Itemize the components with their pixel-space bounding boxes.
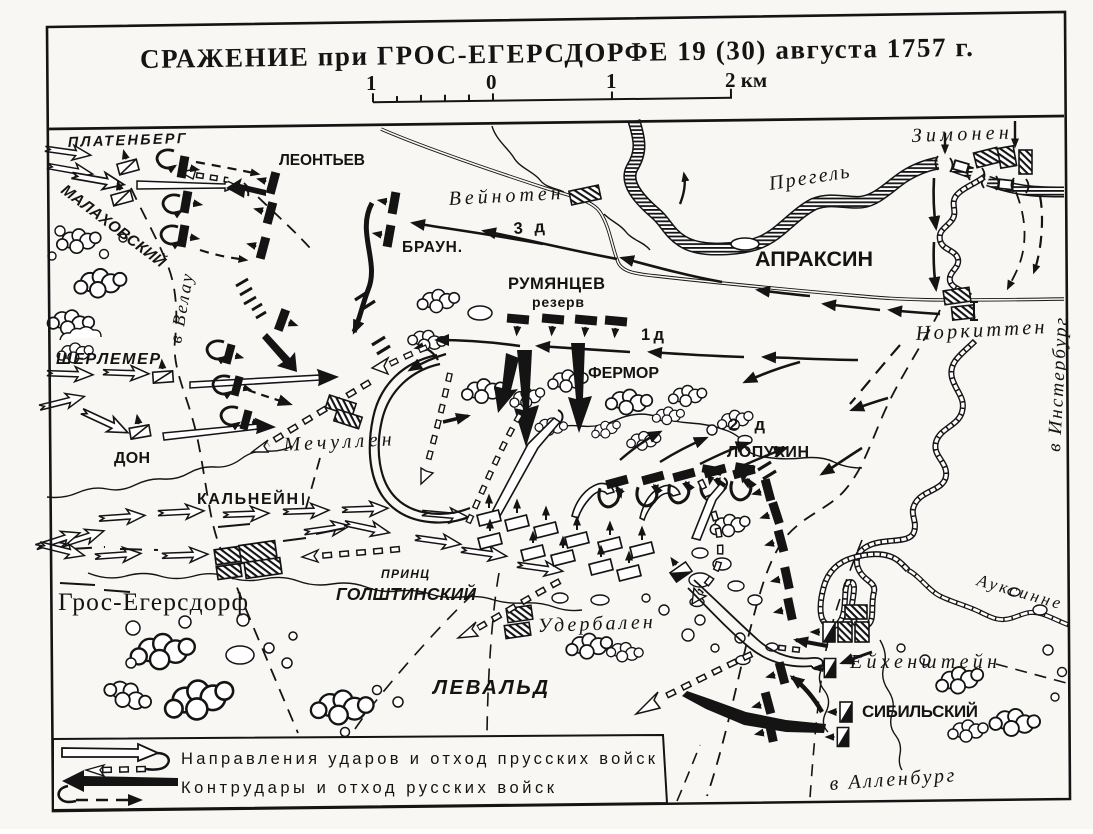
svg-text:Грос-Егерсдорф: Грос-Егерсдорф: [58, 587, 248, 616]
svg-text:БРАУН.: БРАУН.: [402, 239, 462, 256]
svg-text:1: 1: [366, 71, 377, 95]
svg-text:Направления ударов и отход пру: Направления ударов и отход прусских войс…: [181, 750, 656, 768]
svg-text:2 д: 2 д: [729, 416, 766, 434]
svg-text:Ейхенштейн: Ейхенштейн: [849, 651, 997, 673]
svg-text:Контрудары и отход русских во: Контрудары и отход русских войск: [181, 779, 555, 797]
svg-text:ФЕРМОР: ФЕРМОР: [588, 365, 659, 382]
svg-text:резерв: резерв: [532, 294, 584, 310]
svg-text:1: 1: [606, 69, 617, 93]
svg-text:3 д: 3 д: [513, 218, 546, 238]
svg-text:ЛЕВАЛЬД: ЛЕВАЛЬД: [431, 676, 548, 699]
svg-text:ШЕРЛЕМЕР: ШЕРЛЕМЕР: [56, 351, 160, 368]
svg-text:КАЛЬНЕЙН: КАЛЬНЕЙН: [197, 489, 298, 508]
svg-text:1 д: 1 д: [641, 326, 665, 344]
svg-text:2 км: 2 км: [725, 68, 767, 92]
svg-text:РУМЯНЦЕВ: РУМЯНЦЕВ: [508, 275, 605, 293]
svg-text:ПРИНЦ: ПРИНЦ: [381, 567, 429, 581]
svg-text:ЛЕОНТЬЕВ: ЛЕОНТЬЕВ: [279, 152, 365, 169]
svg-text:0: 0: [486, 70, 497, 94]
svg-text:ДОН: ДОН: [114, 450, 150, 467]
svg-text:АПРАКСИН: АПРАКСИН: [755, 247, 873, 271]
svg-text:ЛОПУХИН: ЛОПУХИН: [727, 444, 809, 461]
svg-text:Удербален: Удербален: [537, 611, 653, 637]
svg-text:СИБИЛЬСКИЙ: СИБИЛЬСКИЙ: [862, 702, 978, 721]
svg-text:ГОЛШТИНСКИЙ: ГОЛШТИНСКИЙ: [336, 583, 476, 604]
